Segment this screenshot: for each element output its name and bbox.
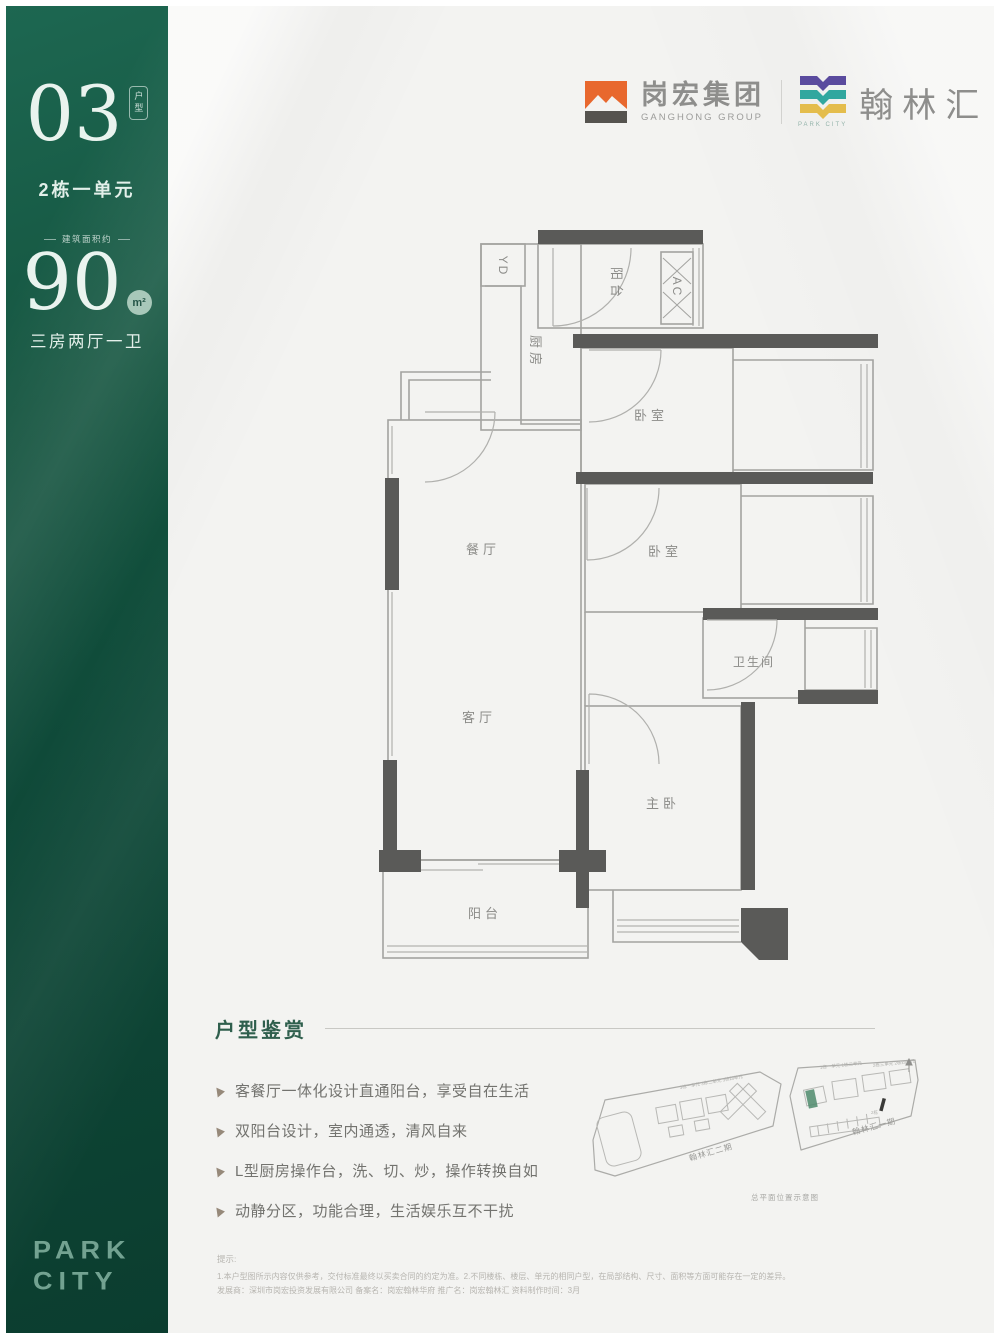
open-book-icon <box>800 76 846 120</box>
bullet-item: 双阳台设计，室内通透，清风自来 <box>217 1120 577 1144</box>
appreciation-header: 户型鉴赏 <box>215 1014 875 1043</box>
room-label-balcony-top: 阳台 <box>609 267 624 301</box>
area-row: 90 m² <box>6 244 168 322</box>
project-name: 翰林汇 <box>859 78 988 127</box>
phase2-label: 翰林汇二期 <box>688 1141 734 1163</box>
phase1-parcel: 1栋一单元 1栋二单元 2栋三单元 2栋四单元 2栋 翰林汇一期 <box>790 1058 918 1150</box>
unit-number: 03 <box>26 76 123 152</box>
room-label-bedroom-2: 卧室 <box>648 544 682 559</box>
room-labels: YD 阳台 AC 厨房 卧室 卧室 餐厅 客厅 卫生间 主卧 阳台 <box>462 256 775 921</box>
sidebar: 03 户型 2栋一单元 建筑面积约 90 m² 三房两厅一卫 PARK CITY <box>6 6 168 1333</box>
disclaimer-line-1: 1.本户型图所示内容仅供参考，交付标准最终以买卖合同的约定为准。2.不同楼栋、楼… <box>217 1270 882 1284</box>
room-label-living: 客厅 <box>462 710 496 725</box>
bullet-item: 客餐厅一体化设计直通阳台，享受自在生活 <box>217 1080 577 1104</box>
room-label-balcony-bottom: 阳台 <box>468 906 502 921</box>
brochure-page: 03 户型 2栋一单元 建筑面积约 90 m² 三房两厅一卫 PARK CITY… <box>0 0 1000 1339</box>
thin-walls <box>383 244 877 958</box>
bullet-leaf-icon <box>216 1206 225 1217</box>
location-marker <box>879 1098 886 1111</box>
bullet-item: 动静分区，功能合理，生活娱乐互不干扰 <box>217 1200 577 1224</box>
room-label-master: 主卧 <box>646 796 680 811</box>
appreciation-title: 户型鉴赏 <box>215 1014 307 1043</box>
appreciation-rule <box>325 1028 875 1029</box>
phase1-tiny-labels-1: 1栋一单元 1栋二单元 <box>819 1060 862 1071</box>
bullet-text: 客餐厅一体化设计直通阳台，享受自在生活 <box>235 1080 530 1104</box>
brand-line-1: PARK <box>33 1235 132 1266</box>
bullet-leaf-icon <box>216 1086 225 1097</box>
park-city-wordmark: PARK CITY <box>33 1235 132 1297</box>
appreciation-bullets: 客餐厅一体化设计直通阳台，享受自在生活 双阳台设计，室内通透，清风自来 L型厨房… <box>217 1080 577 1240</box>
bullet-text: 双阳台设计，室内通透，清风自来 <box>235 1120 468 1144</box>
bullet-leaf-icon <box>216 1166 225 1177</box>
disclaimer: 提示: 1.本户型图所示内容仅供参考，交付标准最终以买卖合同的约定为准。2.不同… <box>217 1253 882 1298</box>
windows <box>387 248 871 952</box>
phase2-tiny-labels: 3栋一单元 3栋二单元 3栋四单元 <box>679 1073 744 1091</box>
site-plan: 3栋一单元 3栋二单元 3栋四单元 翰林汇二期 1栋一单元 1栋二单元 2栋三单… <box>585 1058 920 1208</box>
unit-number-row: 03 户型 <box>6 76 168 152</box>
siteplan-caption: 总平面位置示意图 <box>751 1192 819 1202</box>
room-layout-label: 三房两厅一卫 <box>6 328 168 352</box>
square-meter-badge: m² <box>127 290 152 315</box>
room-label-kitchen: 厨房 <box>528 335 543 369</box>
disclaimer-line-2: 发展商：深圳市岗宏投资发展有限公司 备案名：岗宏翰林华府 推广名：岗宏翰林汇 资… <box>217 1284 882 1298</box>
bullet-text: 动静分区，功能合理，生活娱乐互不干扰 <box>235 1200 514 1224</box>
bullet-leaf-icon <box>216 1126 225 1137</box>
room-label-dining: 餐厅 <box>466 542 500 557</box>
unit-type-badge: 户型 <box>129 86 148 120</box>
group-name: 岗宏集团 <box>641 81 765 111</box>
building-unit-label: 2栋一单元 <box>6 176 168 202</box>
room-label-yd: YD <box>496 256 510 277</box>
group-subtitle: GANGHONG GROUP <box>641 112 765 123</box>
bullet-text: L型厨房操作台，洗、切、炒，操作转换自如 <box>235 1160 538 1184</box>
marker-label: 2栋 <box>871 1109 879 1116</box>
ganghong-logo-text: 岗宏集团 GANGHONG GROUP <box>641 81 765 124</box>
disclaimer-heading: 提示: <box>217 1253 882 1265</box>
logo-divider <box>781 80 782 124</box>
room-label-ac: AC <box>670 277 684 298</box>
hanlinhui-logo-mark: PARK CITY <box>798 76 847 128</box>
area-number: 90 <box>22 244 121 322</box>
bullet-item: L型厨房操作台，洗、切、炒，操作转换自如 <box>217 1160 577 1184</box>
floor-plan: YD 阳台 AC 厨房 卧室 卧室 餐厅 客厅 卫生间 主卧 阳台 <box>373 220 883 980</box>
brand-line-2: CITY <box>33 1266 132 1297</box>
ganghong-logo-icon <box>583 79 629 125</box>
room-label-bedroom-1: 卧室 <box>634 408 668 423</box>
thick-walls <box>379 230 878 960</box>
header-logos: 岗宏集团 GANGHONG GROUP PARK CITY 翰林汇 <box>583 70 988 134</box>
phase2-parcel: 3栋一单元 3栋二单元 3栋四单元 翰林汇二期 <box>593 1072 781 1176</box>
door-arcs <box>425 248 777 764</box>
phase1-label: 翰林汇一期 <box>851 1116 897 1137</box>
project-subtitle: PARK CITY <box>798 122 847 128</box>
room-label-bathroom: 卫生间 <box>733 655 775 669</box>
